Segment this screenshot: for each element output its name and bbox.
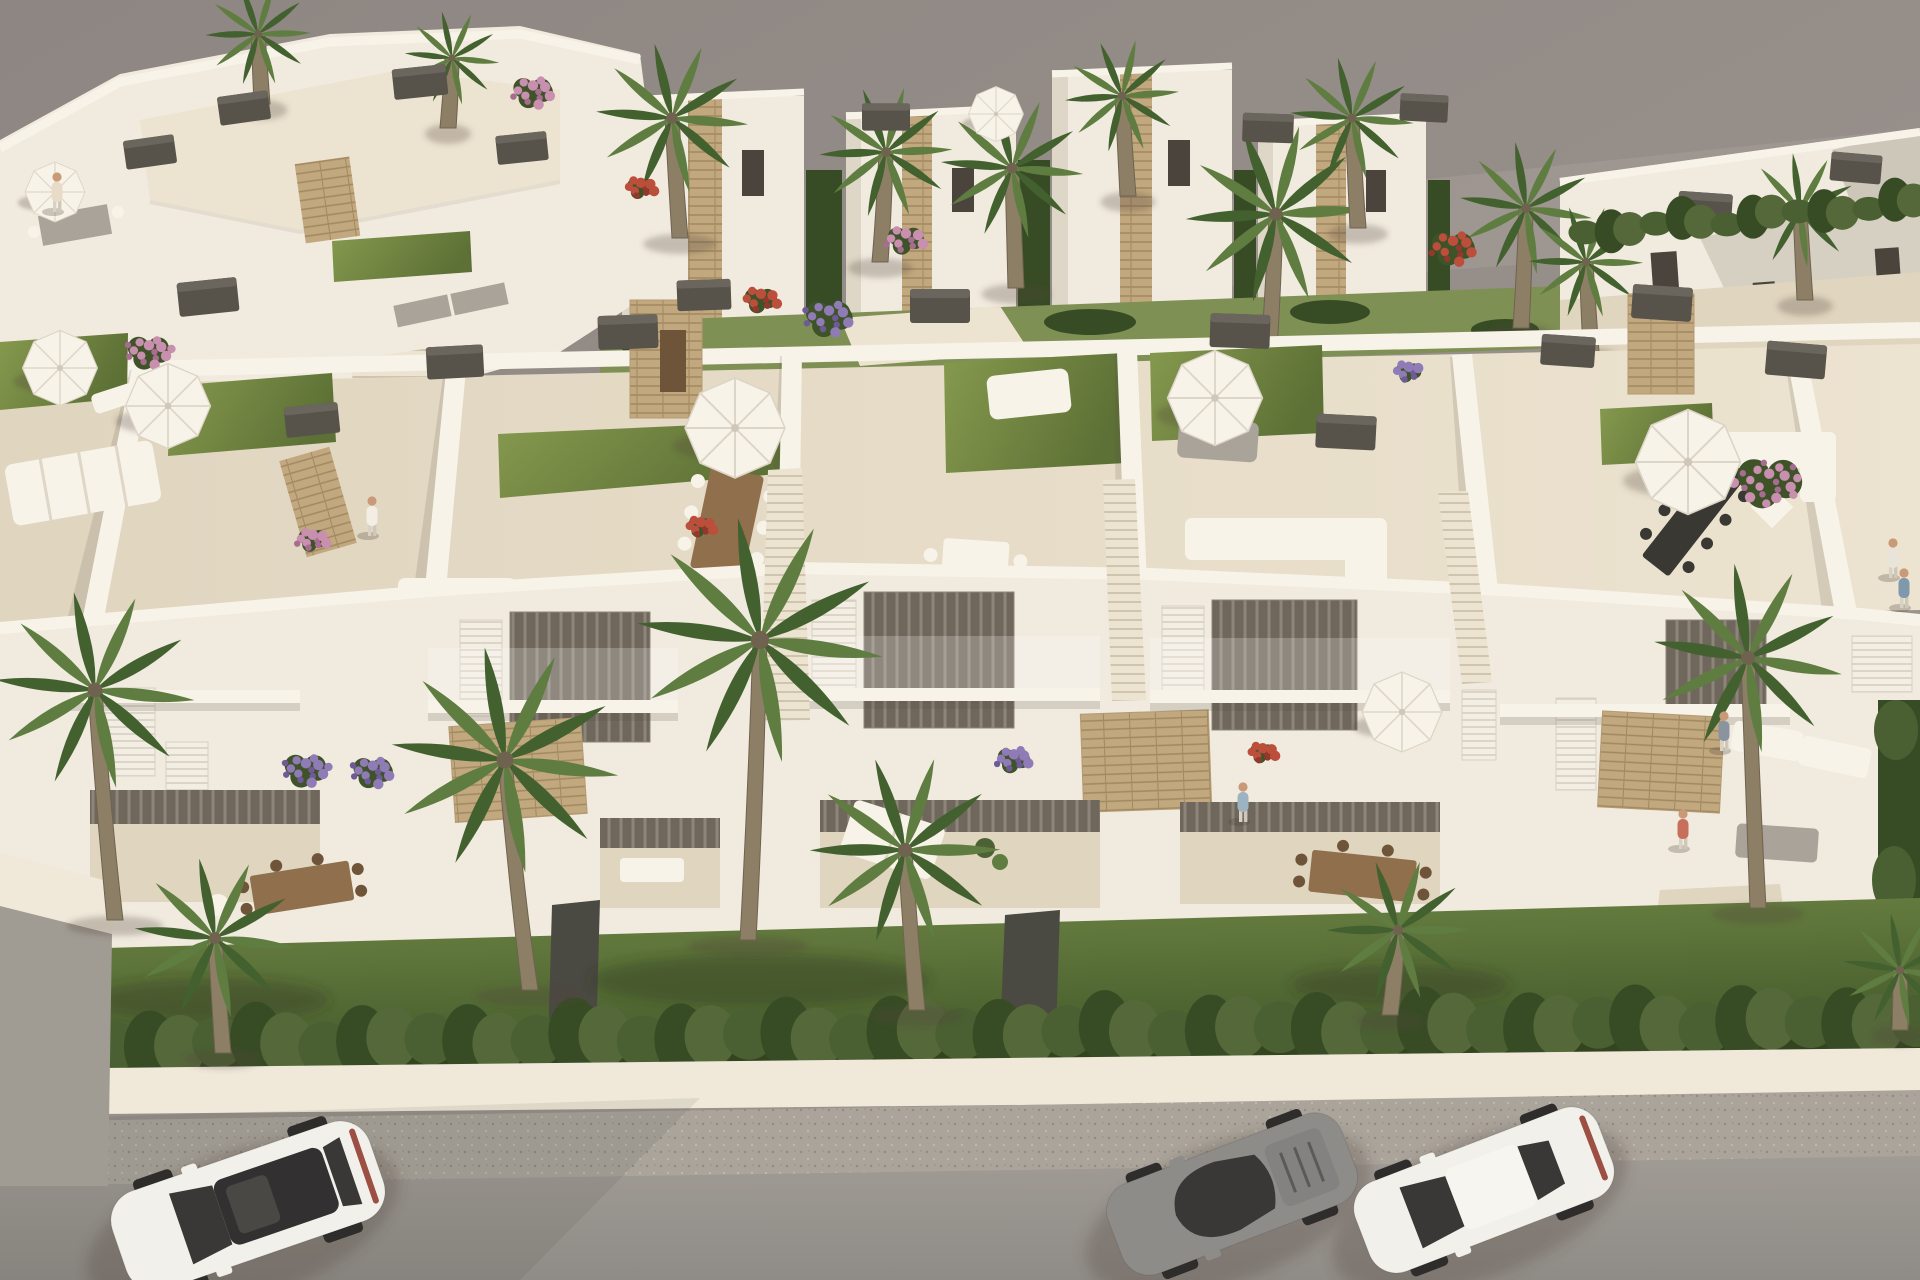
- rooftop-ac-unit: [176, 277, 239, 317]
- rooftop-ac-unit: [392, 64, 449, 100]
- rooftop-ac-unit: [1829, 151, 1882, 184]
- rooftop-ac-unit: [1209, 313, 1270, 349]
- rooftop-ac-unit: [426, 344, 485, 379]
- rooftop-ac-unit: [910, 289, 970, 323]
- villa: [1052, 66, 1232, 320]
- rooftop-ac-unit: [1399, 93, 1448, 123]
- rooftop-ac-unit: [676, 279, 731, 311]
- rooftop-ac-unit: [495, 131, 549, 165]
- rooftop-ac-unit: [1540, 334, 1596, 368]
- rooftop-ac-unit: [284, 402, 341, 438]
- rooftop-ac-unit: [1315, 413, 1377, 450]
- stone-canopy: [1598, 711, 1725, 813]
- screenshot-root: [0, 0, 1920, 1280]
- stair-door: [660, 330, 686, 392]
- rooftop-ac-unit: [1765, 340, 1828, 379]
- rooftop-ac-unit: [1242, 113, 1294, 144]
- stone-canopy: [1080, 710, 1211, 812]
- aerial-render-scene: [0, 0, 1920, 1280]
- rooftop-ac-unit: [1631, 284, 1693, 322]
- rooftop-ac-unit: [862, 103, 910, 130]
- rooftop-ac-unit: [597, 314, 658, 350]
- street-left-corner: [0, 852, 118, 1186]
